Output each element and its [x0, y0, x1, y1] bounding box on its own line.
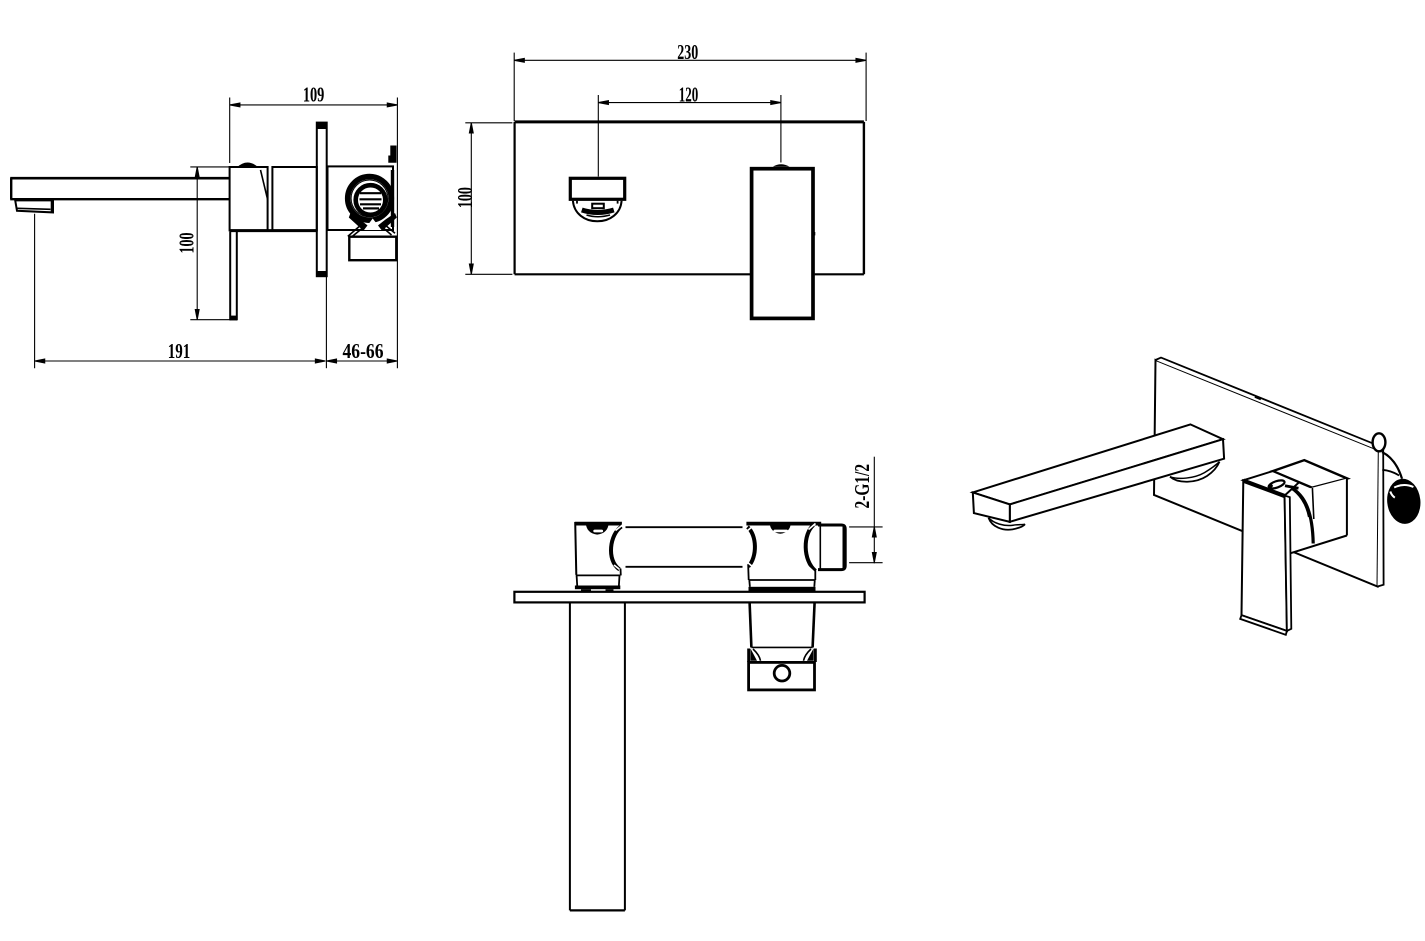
svg-text:46-66: 46-66 — [343, 340, 384, 363]
svg-text:120: 120 — [679, 83, 699, 106]
svg-text:2-G1/2: 2-G1/2 — [851, 464, 874, 509]
svg-text:230: 230 — [677, 40, 698, 63]
svg-text:100: 100 — [175, 233, 198, 254]
svg-text:100: 100 — [454, 187, 477, 208]
svg-text:191: 191 — [168, 340, 191, 363]
svg-text:109: 109 — [303, 83, 325, 106]
